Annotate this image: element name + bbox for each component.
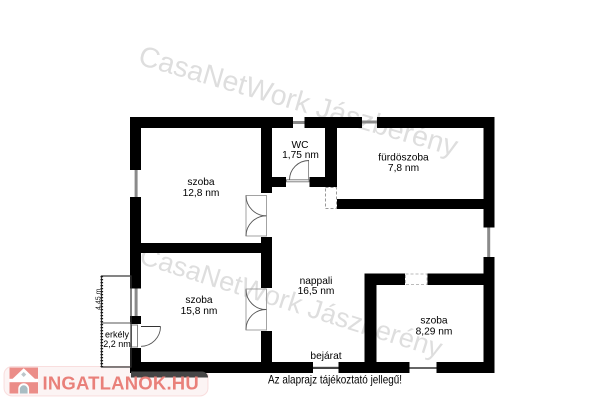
svg-text:4,45 m: 4,45 m bbox=[96, 288, 103, 310]
svg-text:fürdöszoba: fürdöszoba bbox=[378, 153, 429, 164]
svg-text:2,2 nm: 2,2 nm bbox=[103, 339, 131, 349]
svg-text:bejárat: bejárat bbox=[310, 351, 341, 362]
svg-text:1,75 nm: 1,75 nm bbox=[282, 150, 319, 161]
svg-text:Az alaprajz tájékoztató jelleg: Az alaprajz tájékoztató jellegű! bbox=[268, 373, 402, 387]
svg-text:erkély: erkély bbox=[105, 330, 130, 340]
svg-text:INGATLANOK.HU: INGATLANOK.HU bbox=[43, 373, 199, 394]
svg-text:CasaNetWork Jászberény: CasaNetWork Jászberény bbox=[136, 239, 446, 363]
svg-text:16,5 nm: 16,5 nm bbox=[298, 286, 335, 297]
svg-text:szoba: szoba bbox=[187, 177, 215, 188]
svg-text:7,8 nm: 7,8 nm bbox=[388, 163, 419, 174]
svg-text:15,8 nm: 15,8 nm bbox=[181, 306, 218, 317]
svg-text:szoba: szoba bbox=[420, 316, 448, 327]
svg-text:8,29 nm: 8,29 nm bbox=[416, 327, 453, 338]
svg-text:szoba: szoba bbox=[185, 295, 213, 306]
svg-text:12,8 nm: 12,8 nm bbox=[183, 188, 220, 199]
